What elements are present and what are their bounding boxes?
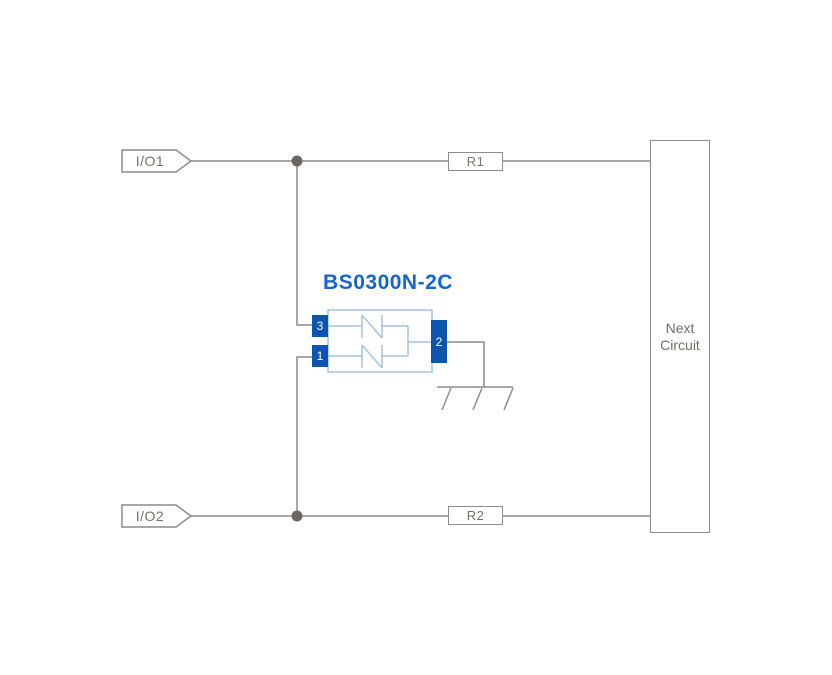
component-body-outline bbox=[328, 310, 432, 372]
resistor-r1-label: R1 bbox=[467, 154, 485, 169]
next-circuit-label-line1: Next bbox=[660, 320, 700, 337]
io2-label: I/O2 bbox=[122, 505, 178, 527]
wire-junction-to-pin1 bbox=[297, 357, 313, 516]
next-circuit-box: Next Circuit bbox=[650, 140, 710, 533]
next-circuit-label: Next Circuit bbox=[660, 320, 700, 354]
junction-dot-bottom bbox=[292, 511, 303, 522]
tvs-bottom-diagonal bbox=[362, 345, 382, 368]
resistor-r2: R2 bbox=[448, 506, 503, 525]
ground-hatch-3 bbox=[504, 388, 513, 410]
ground-hatch-2 bbox=[473, 388, 482, 410]
junction-dot-top bbox=[292, 156, 303, 167]
ground-icon bbox=[437, 387, 513, 410]
tvs-diode-symbol-bottom bbox=[328, 345, 408, 368]
wire-pin2-to-ground bbox=[447, 342, 484, 387]
resistor-r1: R1 bbox=[448, 152, 503, 171]
tvs-top-diagonal bbox=[362, 315, 382, 338]
component-pin-2: 2 bbox=[431, 320, 447, 363]
resistor-r2-label: R2 bbox=[467, 508, 485, 523]
tvs-diode-symbol-top bbox=[328, 315, 408, 338]
io1-label: I/O1 bbox=[122, 150, 178, 172]
tvs-common-connector bbox=[408, 326, 431, 356]
component-title: BS0300N-2C bbox=[305, 270, 471, 296]
component-pin-1: 1 bbox=[312, 345, 328, 367]
circuit-diagram-canvas: I/O1 I/O2 R1 R2 Next Circuit BS0300N-2C … bbox=[0, 0, 832, 675]
component-pin-3: 3 bbox=[312, 315, 328, 337]
ground-hatch-1 bbox=[442, 388, 451, 410]
wire-junction-to-pin3 bbox=[297, 161, 313, 325]
next-circuit-label-line2: Circuit bbox=[660, 337, 700, 354]
